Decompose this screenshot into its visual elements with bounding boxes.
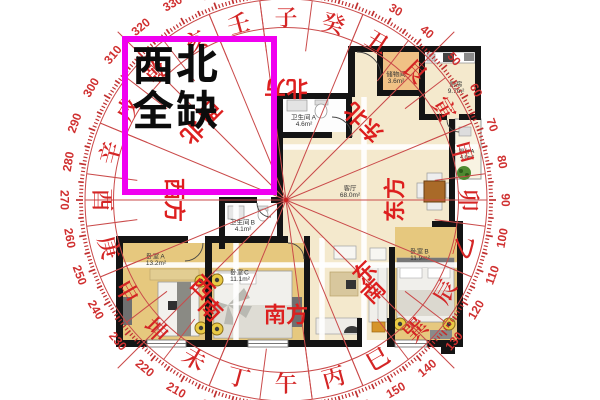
svg-text:4.6m²: 4.6m²	[296, 121, 313, 128]
svg-text:270: 270	[58, 190, 72, 210]
svg-text:90: 90	[499, 193, 513, 207]
svg-text:13.2m²: 13.2m²	[146, 260, 167, 267]
svg-text:4.1m²: 4.1m²	[235, 226, 252, 233]
svg-text:A: A	[312, 114, 317, 121]
svg-text:80: 80	[494, 154, 510, 170]
svg-text:68.0m²: 68.0m²	[340, 192, 361, 199]
svg-text:11.1m²: 11.1m²	[230, 276, 251, 283]
